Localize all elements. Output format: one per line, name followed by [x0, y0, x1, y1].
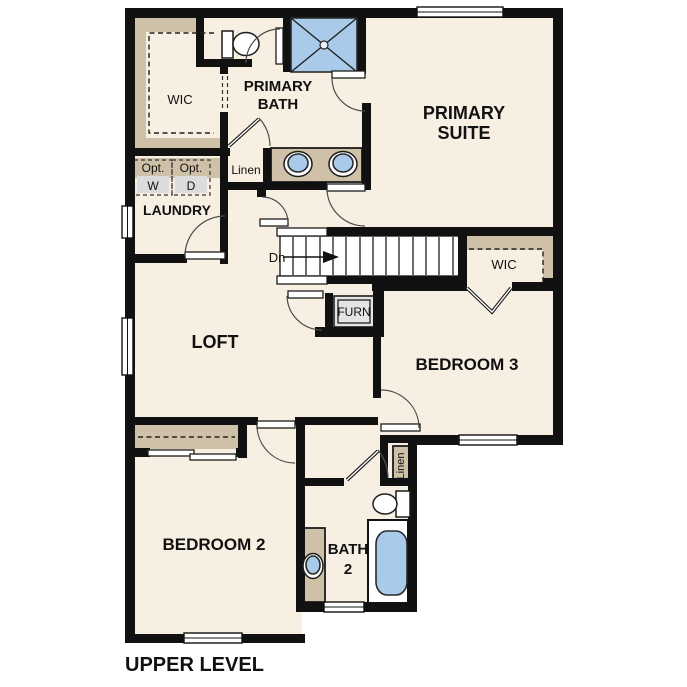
label-opt-washer-2: W: [147, 179, 159, 193]
wall-bath2-linen-top: [380, 435, 417, 443]
bath2-toilet-bowl: [373, 494, 397, 514]
wall-bath2-vestibule: [296, 478, 344, 486]
wall-wic-primary-jamb-bottom: [220, 112, 228, 148]
wall-bedroom3-top-a: [372, 282, 467, 291]
wall-wic-primary-bottom: [125, 148, 230, 156]
wall-furnace-bottom: [315, 327, 384, 337]
primary-toilet-tank: [222, 31, 233, 58]
room-label-wic-bedroom3: WIC: [491, 257, 516, 272]
wall-vanity-bottom-a: [263, 182, 327, 190]
door-primary-suite-bath-leaf: [332, 71, 365, 78]
room-label-primary-suite-2: SUITE: [437, 123, 490, 143]
label-stairs-down: Dn: [269, 250, 286, 265]
label-opt-dryer-2: D: [187, 179, 196, 193]
bath2-tub: [376, 531, 407, 595]
primary-sink-left-basin: [288, 154, 308, 172]
stair-rail-top: [277, 228, 327, 236]
label-opt-dryer-1: Opt.: [180, 161, 203, 175]
wall-bedroom2-right: [296, 424, 305, 610]
floorplan-canvas: WIC PRIMARY BATH PRIMARY SUITE Opt. W Op…: [0, 0, 687, 687]
room-label-bath2-2: 2: [344, 561, 352, 578]
wall-loft-bottom-b: [295, 417, 378, 425]
door-laundry-leaf: [185, 252, 225, 259]
wall-laundry-bottom: [125, 254, 187, 263]
room-label-primary-bath-1: PRIMARY: [244, 78, 313, 95]
wall-wic-primary-jamb-top: [220, 64, 228, 74]
wall-bedroom2-closet-bottom-a: [125, 448, 150, 457]
shower-drain: [320, 41, 328, 49]
wall-bedroom2-closet-bottom-b: [236, 448, 247, 457]
floorplan-drawing: WIC PRIMARY BATH PRIMARY SUITE Opt. W Op…: [0, 0, 687, 687]
wall-stairs-end: [458, 227, 467, 291]
room-label-primary-bath-2: BATH: [258, 96, 299, 113]
wall-furnace-right: [376, 284, 384, 337]
door-primary-bath-leaf: [276, 28, 283, 64]
door-bedroom3-leaf: [381, 424, 420, 431]
wall-hall-stub: [257, 182, 266, 197]
label-opt-washer-1: Opt.: [142, 161, 165, 175]
room-label-primary-suite-1: PRIMARY: [423, 103, 505, 123]
closet-bypass-door-right: [190, 454, 236, 460]
room-label-wic-primary: WIC: [167, 92, 192, 107]
wic-bedroom3-shelf-top: [467, 236, 553, 250]
wall-shower-right: [357, 16, 366, 74]
label-linen-hall: Linen: [231, 163, 260, 177]
wall-exterior-right: [553, 8, 563, 445]
wall-bedroom3-top-b: [512, 282, 553, 291]
room-label-bath2-1: BATH: [328, 541, 369, 558]
door-primary-suite-leaf: [327, 184, 365, 191]
primary-shower: [291, 18, 357, 72]
primary-sink-right-basin: [333, 154, 353, 172]
wall-laundry-right: [220, 148, 228, 264]
stair-rail-bottom: [277, 276, 327, 284]
wall-shower-left: [283, 16, 291, 72]
room-label-bedroom3: BEDROOM 3: [416, 355, 519, 374]
staircase: [277, 228, 466, 284]
closet-bypass-door-left: [148, 450, 194, 456]
wall-toilet-nook-left: [196, 16, 204, 66]
wall-stairs-top: [327, 227, 563, 236]
room-label-bedroom2: BEDROOM 2: [163, 535, 266, 554]
bath2-sink-basin: [306, 556, 320, 574]
plan-title: UPPER LEVEL: [125, 654, 264, 676]
wall-vanity-bottom-b: [365, 182, 371, 190]
primary-toilet-bowl: [233, 33, 259, 56]
room-label-laundry: LAUNDRY: [143, 202, 212, 218]
label-linen-bath2: Linen: [395, 453, 407, 480]
bath2-toilet-tank: [396, 491, 410, 517]
wall-bath2-right: [408, 435, 417, 612]
label-furnace: FURN: [337, 305, 370, 319]
room-label-loft: LOFT: [192, 332, 239, 352]
primary-toilet: [222, 31, 259, 58]
door-bedroom2-leaf: [257, 421, 295, 428]
door-loft-hall-leaf: [260, 219, 288, 226]
door-stair-hall-leaf: [288, 291, 323, 298]
wall-primary-bath-right: [362, 103, 371, 190]
